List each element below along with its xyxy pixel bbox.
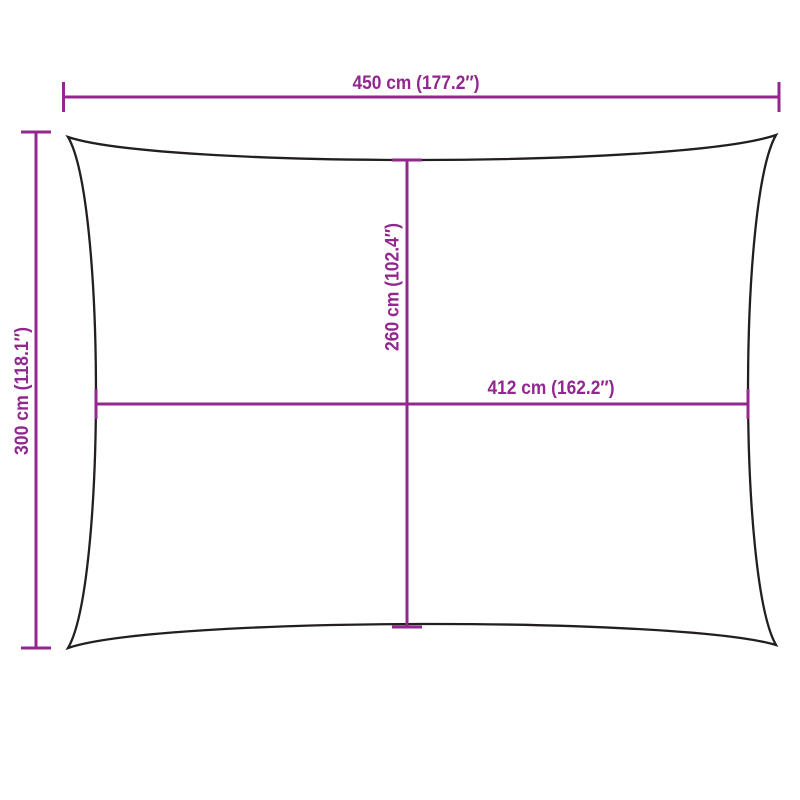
svg-text:412 cm (162.2″): 412 cm (162.2″) <box>488 377 615 399</box>
svg-text:260 cm (102.4″): 260 cm (102.4″) <box>382 223 404 351</box>
svg-text:450 cm (177.2″): 450 cm (177.2″) <box>353 72 480 94</box>
svg-text:300 cm (118.1″): 300 cm (118.1″) <box>11 327 33 455</box>
